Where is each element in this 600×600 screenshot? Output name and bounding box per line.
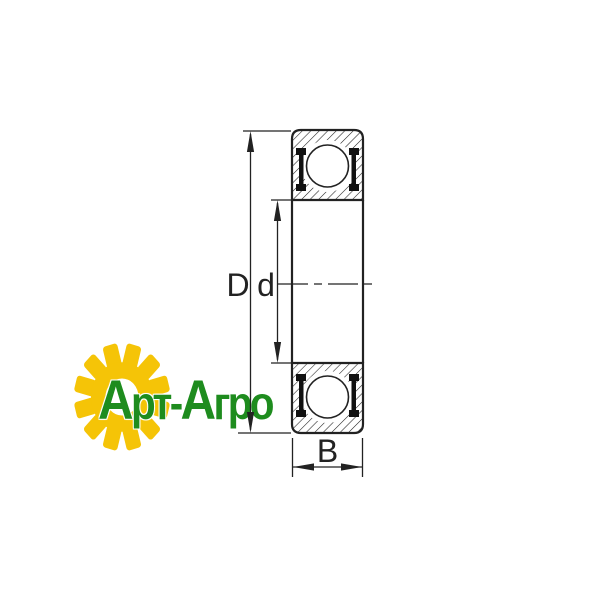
arrow-up-icon bbox=[247, 131, 254, 152]
seal-band bbox=[352, 152, 357, 188]
label-bore-diameter: d bbox=[257, 267, 275, 303]
bore-walls bbox=[292, 200, 363, 363]
label-width: B bbox=[317, 433, 338, 469]
label-outer-diameter: D bbox=[226, 267, 249, 303]
seal-band bbox=[299, 152, 304, 188]
arrow-right-icon bbox=[341, 463, 362, 470]
ball bbox=[307, 376, 349, 418]
seal-band bbox=[352, 378, 357, 414]
arrow-down-icon bbox=[247, 412, 254, 433]
seal-band bbox=[299, 378, 304, 414]
bearing-top-section bbox=[292, 130, 363, 200]
bearing-cross-section-drawing: D d B bbox=[0, 0, 600, 600]
product-image-canvas: Арт-Агро bbox=[0, 0, 600, 600]
bearing-bottom-section bbox=[292, 363, 363, 433]
arrow-down-icon bbox=[274, 342, 281, 363]
arrow-left-icon bbox=[293, 463, 314, 470]
ball bbox=[307, 145, 349, 187]
arrow-up-icon bbox=[274, 200, 281, 221]
